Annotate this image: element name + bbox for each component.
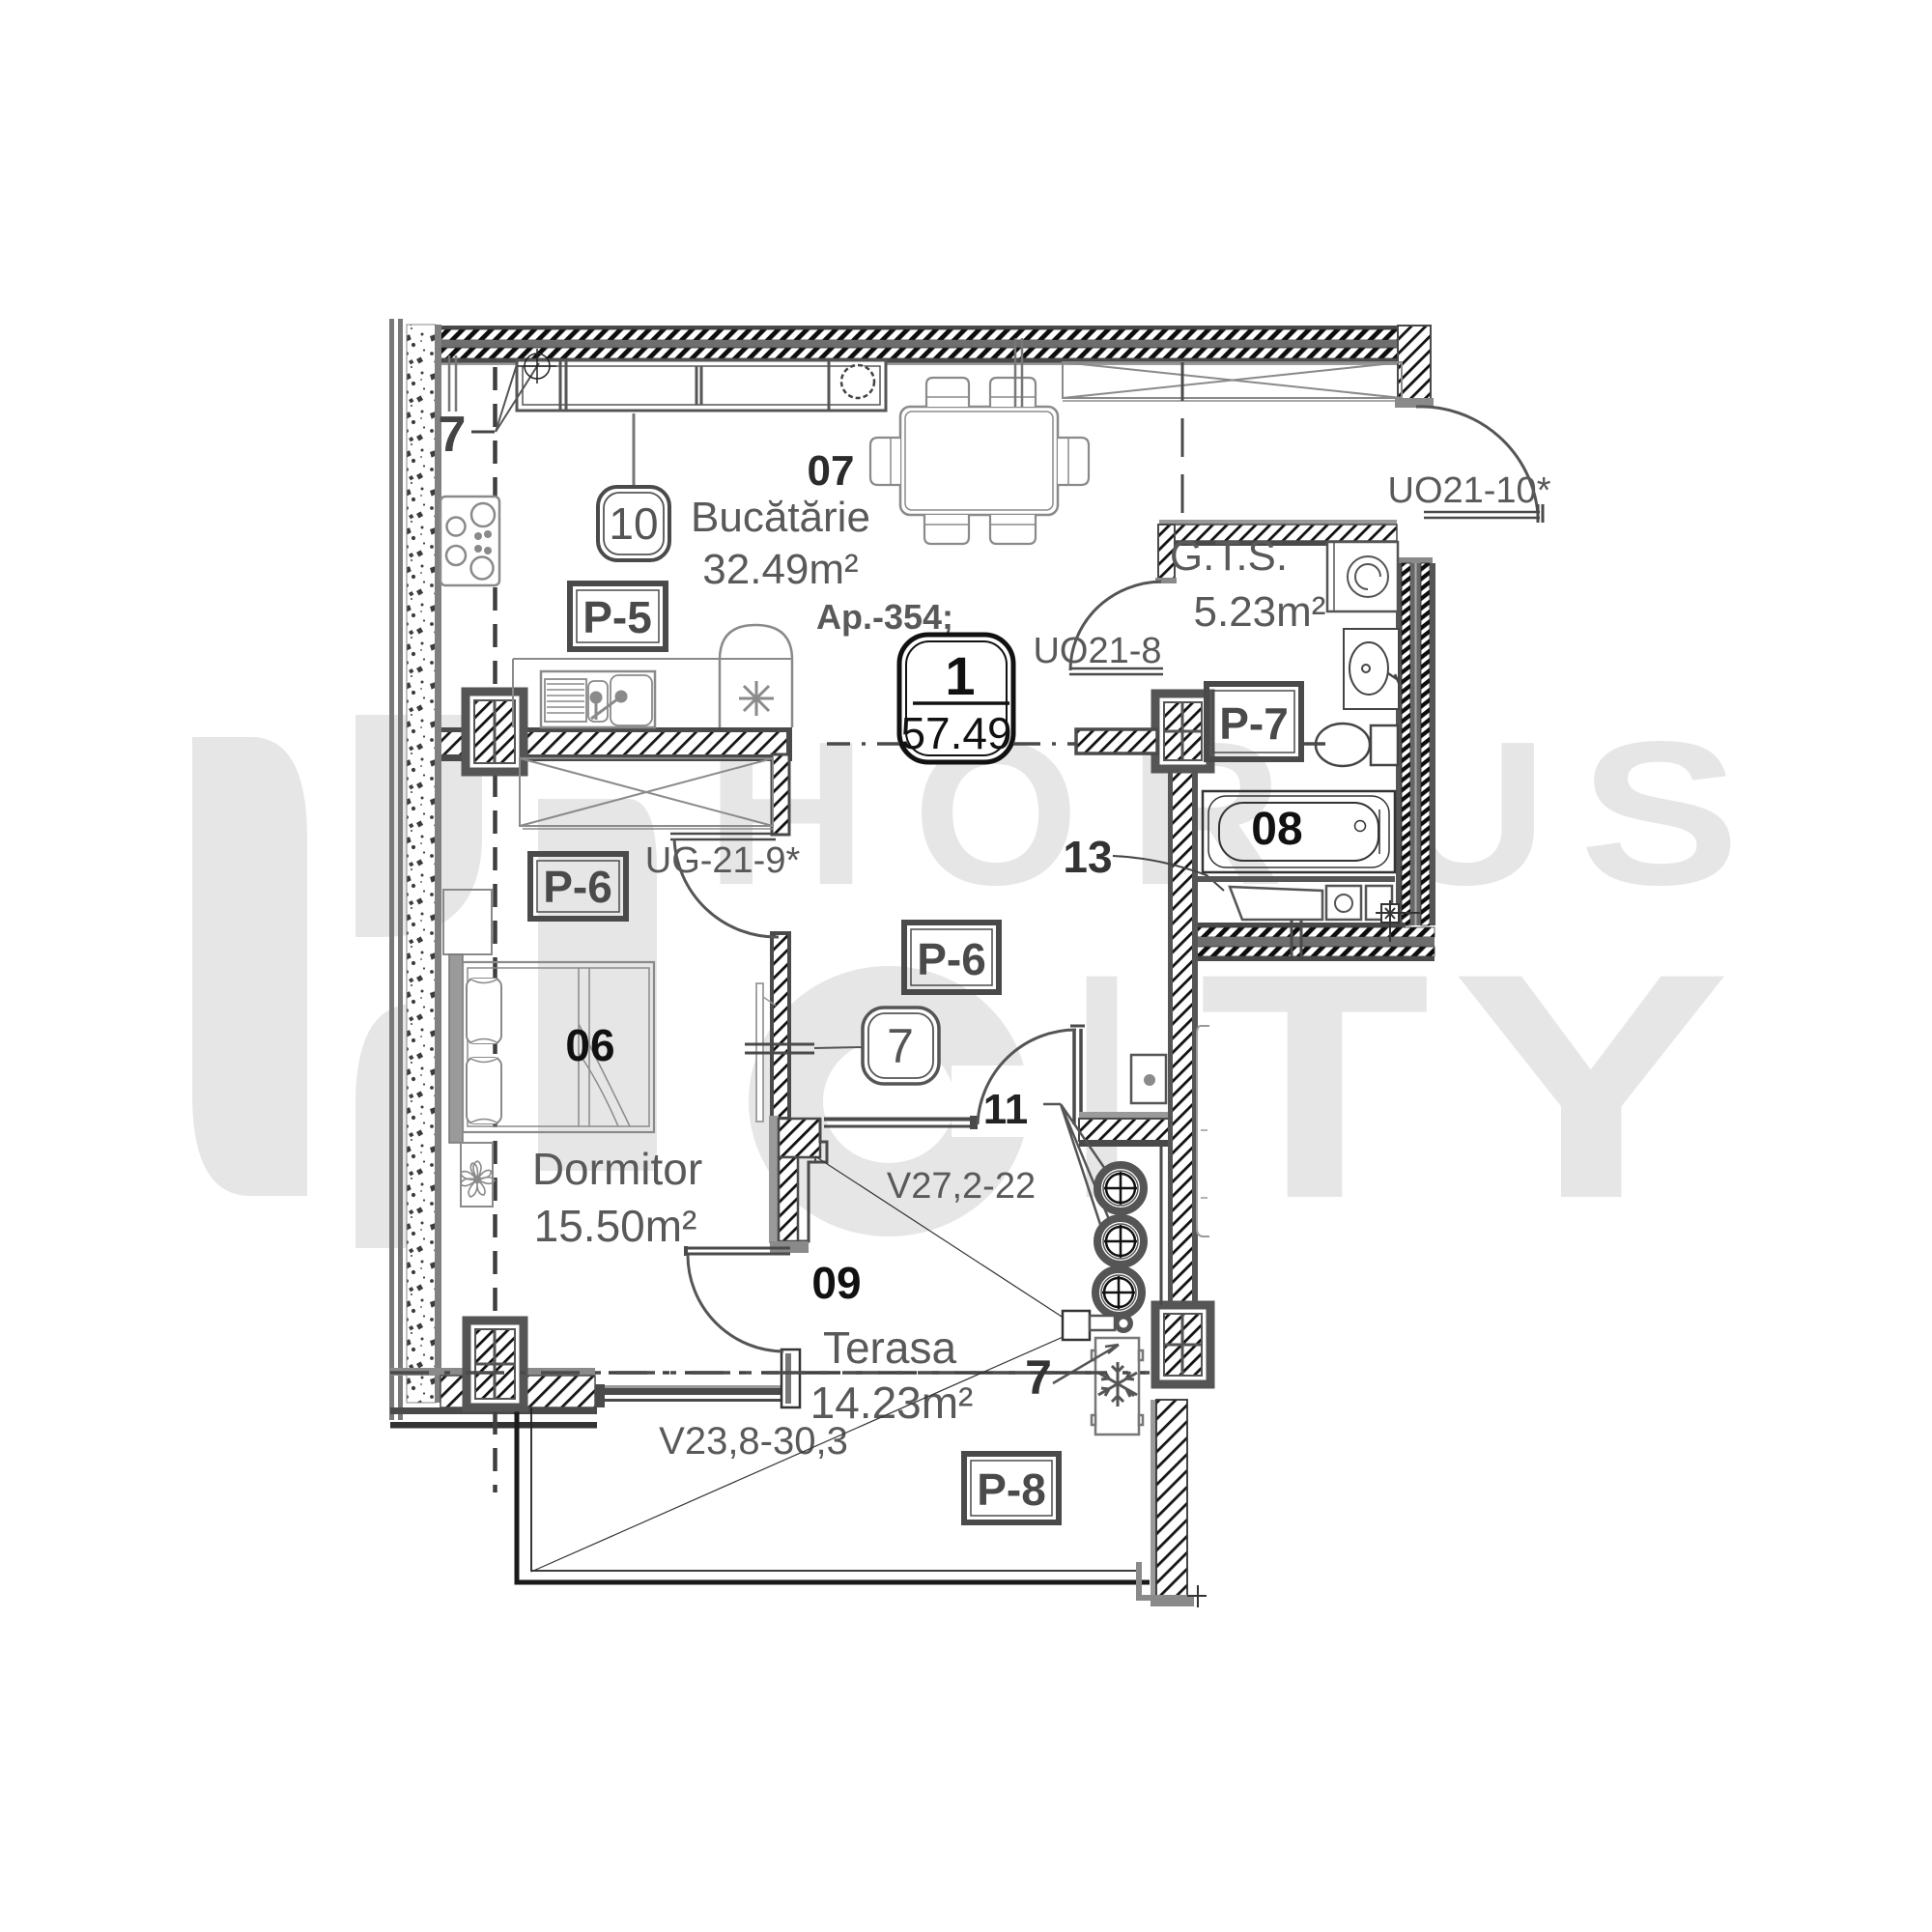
svg-text:Dormitor: Dormitor: [532, 1144, 702, 1194]
svg-text:15.50m²: 15.50m²: [534, 1201, 697, 1251]
svg-text:13: 13: [1063, 832, 1112, 882]
svg-text:V23,8-30,3: V23,8-30,3: [659, 1420, 848, 1463]
svg-text:7: 7: [439, 407, 467, 463]
svg-text:09: 09: [811, 1258, 861, 1308]
svg-text:S: S: [1579, 698, 1740, 927]
svg-text:1: 1: [945, 645, 975, 706]
svg-text:10: 10: [609, 498, 658, 549]
svg-text:G.T.S.: G.T.S.: [1170, 532, 1288, 580]
svg-text:P-5: P-5: [582, 592, 652, 642]
svg-text:57.49: 57.49: [900, 708, 1011, 758]
svg-text:Ap.-354;: Ap.-354;: [816, 597, 953, 637]
svg-text:Y: Y: [1451, 907, 1731, 1265]
svg-text:P-6: P-6: [543, 862, 612, 912]
svg-text:P-6: P-6: [917, 934, 986, 984]
svg-text:P-7: P-7: [1219, 698, 1289, 749]
svg-text:08: 08: [1251, 804, 1302, 855]
svg-text:P-8: P-8: [977, 1464, 1046, 1515]
svg-text:07: 07: [808, 447, 855, 495]
svg-text:11: 11: [983, 1086, 1029, 1133]
svg-text:UO21-10*: UO21-10*: [1388, 470, 1551, 511]
svg-text:32.49m²: 32.49m²: [702, 546, 858, 593]
svg-text:UG-21-9*: UG-21-9*: [645, 840, 801, 881]
svg-text:Terasa: Terasa: [823, 1322, 956, 1373]
svg-text:7: 7: [887, 1019, 914, 1073]
svg-text:Bucătărie: Bucătărie: [691, 494, 870, 541]
svg-text:7: 7: [1025, 1350, 1052, 1405]
svg-text:V27,2-22: V27,2-22: [887, 1166, 1036, 1207]
svg-text:5.23m²: 5.23m²: [1194, 588, 1326, 636]
svg-text:06: 06: [565, 1020, 614, 1070]
svg-text:UO21-8: UO21-8: [1033, 631, 1161, 671]
